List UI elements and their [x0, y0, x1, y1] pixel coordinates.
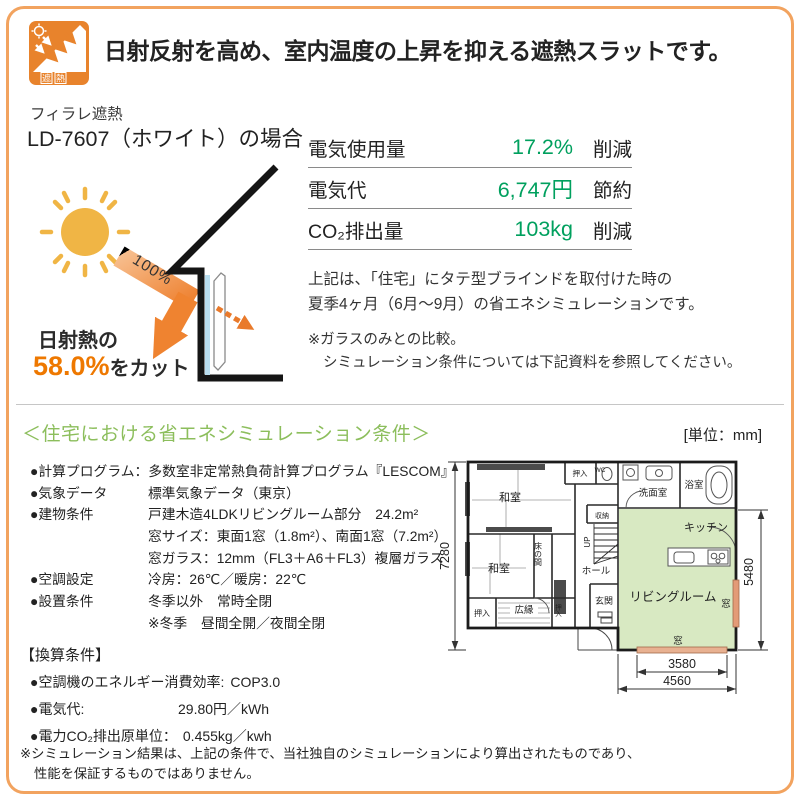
room-label-hiroen: 広縁	[514, 604, 534, 616]
conversion-row: ●空調機のエネルギー消費効率:COP3.0	[30, 668, 280, 695]
icon-nf-label: NF	[71, 63, 82, 72]
condition-row: ●気象データ標準気象データ（東京）	[30, 481, 450, 503]
window-right-label: 窓	[721, 598, 731, 610]
row-unit: 削減	[573, 215, 632, 244]
room-label-kitchen: キッチン	[684, 521, 728, 534]
condition-row: ●建物条件戸建木造4LDKリビングルーム部分 24.2m²	[30, 502, 450, 524]
conditions-heading: ＜住宅における省エネシミュレーション条件＞	[22, 419, 431, 446]
icon-netsu-label: 熱	[56, 73, 65, 84]
row-value: 103kg	[460, 217, 573, 242]
condition-row: ●設置条件冬季以外 常時全閉	[30, 589, 450, 611]
cut-percentage: 58.0%	[33, 351, 110, 381]
summary-note: シミュレーション条件については下記資料を参照してください。	[308, 352, 786, 375]
conversion-heading: 【換算条件】	[20, 644, 110, 665]
cut-text-prefix: 日射熱の	[38, 324, 118, 353]
room-label-up: UP	[583, 536, 592, 547]
table-row: 電気使用量 17.2% 削減	[308, 127, 632, 168]
room-label-tokonoma: 床の間	[534, 541, 543, 567]
sun-icon	[42, 189, 128, 275]
page-title: 日射反射を高め、室内温度の上昇を抑える遮熱スラットです。	[104, 32, 731, 66]
dim-width-living: 4560	[663, 674, 691, 688]
row-unit: 削減	[573, 133, 632, 162]
room-label-genkan: 玄関	[595, 595, 613, 606]
room-label-living: リビングルーム	[629, 590, 716, 604]
conversion-row: ●電気代:29.80円／kWh	[30, 695, 280, 722]
staircase	[594, 524, 618, 564]
dim-width-window: 3580	[668, 657, 696, 671]
condition-row: 窓サイズ：東面1窓（1.8m²）、南面1窓（7.2m²）	[30, 524, 450, 546]
floor-plan: [単位：mm]	[440, 422, 796, 712]
cut-text-value-line: 58.0%をカット	[33, 351, 190, 382]
window-bottom-label: 窓	[673, 635, 683, 647]
row-value: 17.2%	[460, 135, 573, 160]
room-label-bath: 浴室	[684, 479, 703, 491]
summary-line: 上記は、「住宅」にタテ型ブラインドを取付けた時の	[308, 268, 786, 293]
product-series: フィラレ遮熱	[30, 102, 123, 124]
room-label-oshiire-top: 押入	[573, 468, 588, 478]
dim-height-total: 7280	[440, 542, 452, 570]
deflected-heat-arrow	[166, 297, 188, 336]
room-label-washitsu-mid: 和室	[488, 561, 510, 575]
condition-row: ●計算プログラム：多数室非定常熱負荷計算プログラム『LESCOM』	[30, 459, 450, 481]
wall-cross-section	[172, 167, 283, 378]
condition-row: 窓ガラス：12mm（FL3＋A6＋FL3）複層ガラス	[30, 546, 450, 568]
heat-shield-icon: NF 遮 熱	[28, 20, 90, 86]
conditions-list: ●計算プログラム：多数室非定常熱負荷計算プログラム『LESCOM』 ●気象データ…	[30, 459, 450, 633]
room-label-closet: 収納	[595, 511, 609, 520]
table-row: CO₂排出量 103kg 削減	[308, 209, 632, 250]
product-model-case: LD-7607（ホワイト）の場合	[27, 122, 303, 153]
room-label-hall: ホール	[582, 566, 611, 577]
condition-row: ●空調設定冷房：26℃／暖房：22℃	[30, 567, 450, 589]
window-bottom-strip	[637, 647, 727, 653]
simulation-summary: 上記は、「住宅」にタテ型ブラインドを取付けた時の 夏季4ヶ月（6月～9月）の省エ…	[308, 268, 786, 375]
row-label: 電気代	[308, 174, 460, 203]
room-label-senmen: 洗面室	[639, 487, 668, 499]
window-right-strip	[733, 580, 739, 627]
entrance-porch	[578, 612, 618, 650]
cut-suffix: をカット	[110, 358, 190, 380]
icon-sha-label: 遮	[42, 73, 51, 84]
blind-slat	[214, 273, 225, 370]
room-label-oshiire-left: 押入	[474, 608, 490, 618]
summary-note: ※ガラスのみとの比較。	[308, 329, 786, 352]
room-label-wc: WC	[595, 467, 606, 474]
row-unit: 節約	[573, 174, 632, 203]
section-divider	[16, 404, 784, 405]
table-row: 電気代 6,747円 節約	[308, 168, 632, 209]
brochure-page: { "colors": { "frame_orange": "#F2A35F",…	[0, 0, 800, 800]
row-label: CO₂排出量	[308, 215, 460, 244]
row-label: 電気使用量	[308, 133, 460, 162]
savings-table: 電気使用量 17.2% 削減 電気代 6,747円 節約 CO₂排出量 103k…	[308, 127, 632, 250]
disclaimer: ※シミュレーション結果は、上記の条件で、当社独自のシミュレーションにより算出され…	[20, 744, 640, 783]
dim-height-living: 5480	[742, 558, 756, 586]
condition-row: ※冬季 昼間全開／夜間全閉	[30, 611, 450, 633]
window-glass	[205, 275, 210, 375]
shutter-bands	[465, 464, 566, 614]
summary-line: 夏季4ヶ月（6月～9月）の省エネシミュレーションです。	[308, 293, 786, 318]
unit-note: [単位：mm]	[684, 427, 762, 444]
room-label-washitsu-top: 和室	[499, 490, 521, 504]
conversion-list: ●空調機のエネルギー消費効率:COP3.0 ●電気代:29.80円／kWh ●電…	[30, 668, 280, 749]
row-value: 6,747円	[460, 173, 573, 204]
